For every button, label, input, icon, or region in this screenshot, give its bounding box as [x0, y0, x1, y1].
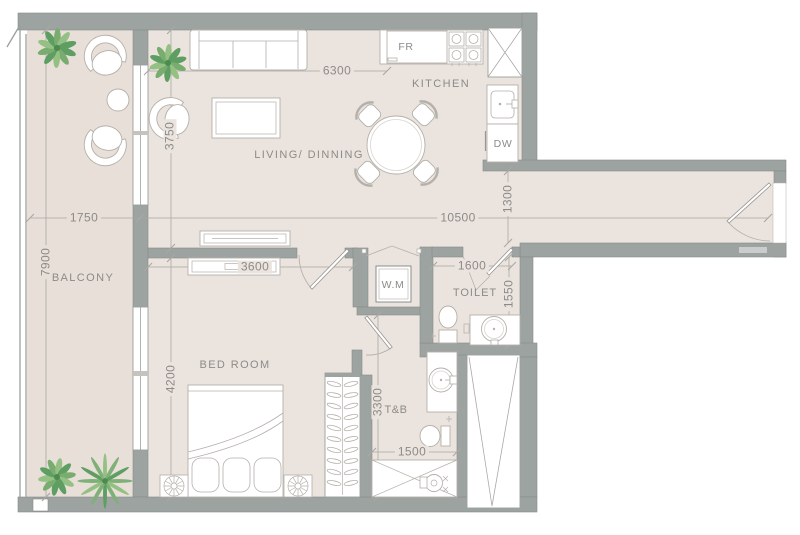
floor-plan-drawing	[0, 0, 800, 535]
shower	[372, 460, 457, 497]
pillow	[192, 458, 219, 492]
wall-right-upper	[522, 13, 537, 162]
wall-wm-left	[353, 248, 368, 307]
window-mullion	[133, 131, 148, 135]
service-shaft	[467, 355, 520, 508]
wall-toilet-top	[432, 247, 463, 257]
wall-right-lower	[520, 357, 537, 497]
dining-table	[367, 116, 425, 174]
wall-top	[18, 13, 537, 30]
wall-toilet-left	[420, 247, 433, 343]
wall-shaft-left	[457, 355, 467, 497]
kitchen-shaft	[488, 28, 522, 77]
coffee-table	[212, 98, 280, 138]
corridor-floor	[483, 171, 774, 243]
wall-bath-left	[360, 375, 372, 497]
window-mullion	[133, 371, 148, 376]
wall-notch	[33, 499, 48, 511]
bedside-rug	[160, 475, 188, 497]
entrance-threshold	[739, 247, 767, 253]
pillow	[223, 458, 250, 492]
wall-corridor-top	[483, 160, 786, 171]
wardrobe	[325, 373, 360, 497]
wall-window-col-1	[133, 30, 148, 65]
washing-machine	[376, 266, 411, 302]
wall-bath-stub	[352, 350, 362, 375]
wall-corridor-right-upper	[774, 171, 786, 184]
bedroom-console	[188, 258, 280, 275]
wall-right-mid	[520, 257, 533, 345]
bedside-rug	[284, 475, 312, 497]
balcony-railing-glass	[7, 25, 26, 497]
tv-console-living	[200, 231, 290, 246]
wall-living-bedroom	[148, 248, 297, 258]
sofa	[190, 30, 307, 70]
kitchen-sink	[487, 85, 518, 124]
bed	[188, 385, 283, 497]
floor-plan: BALCONY LIVING/ DINNING KITCHEN BED ROOM…	[0, 0, 800, 535]
balcony-side-table	[107, 89, 129, 111]
wall-window-col-2	[133, 205, 148, 307]
dishwasher	[486, 124, 519, 162]
wall-toilet-top-post	[512, 247, 520, 257]
wall-window-col-3	[133, 450, 148, 497]
bath-washbasin	[427, 352, 457, 412]
toilet-washbasin	[464, 315, 520, 345]
pillow	[254, 458, 281, 492]
